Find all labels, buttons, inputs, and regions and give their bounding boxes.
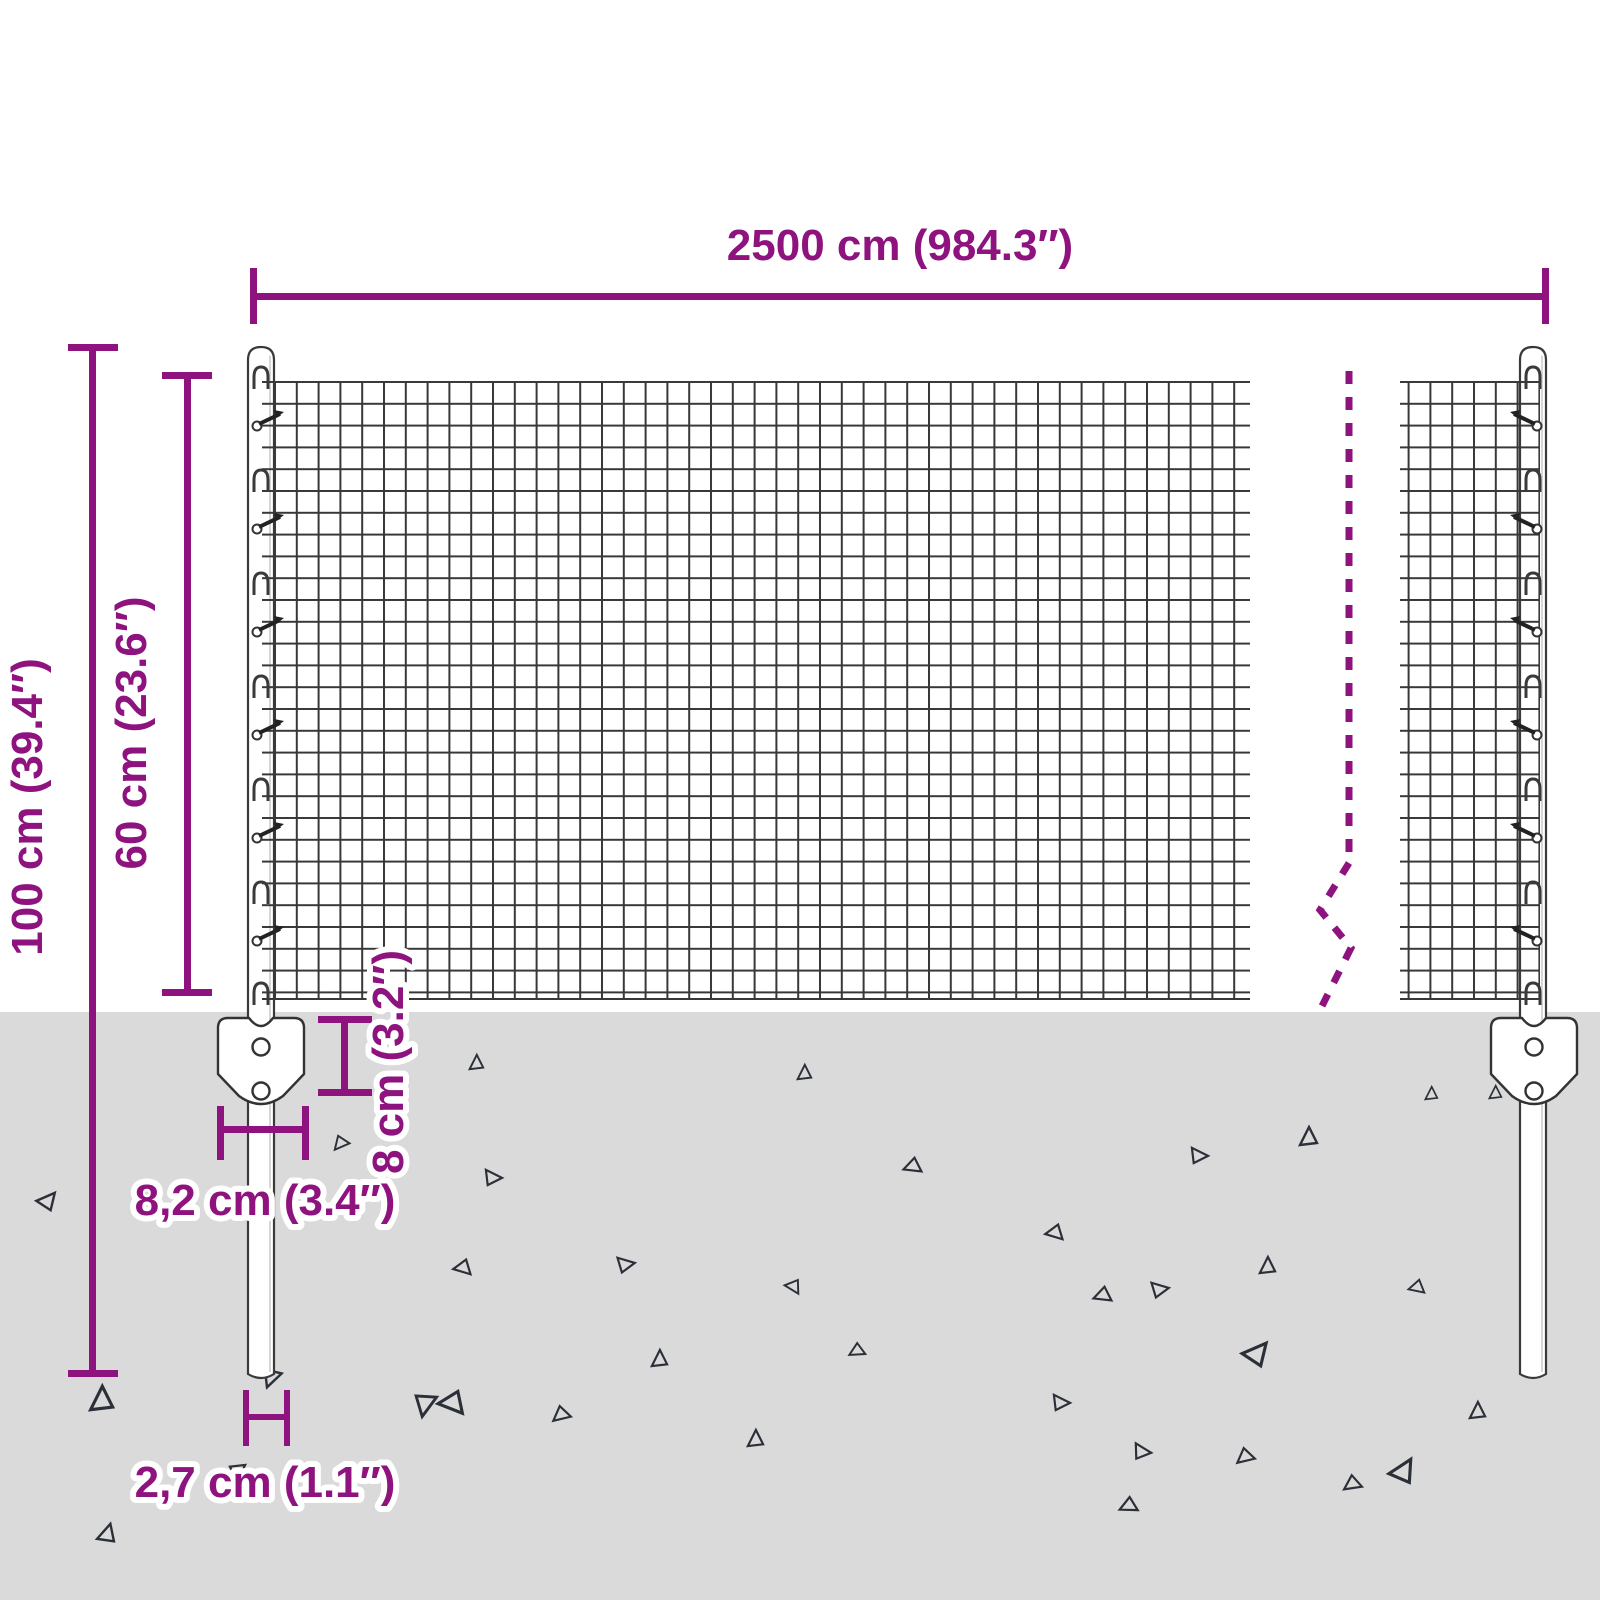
dimension-post-diameter-label: 2,7 cm (1.1″) <box>135 1458 396 1507</box>
dimension-total-width <box>250 268 1549 324</box>
dimension-bracket-width-label: 8,2 cm (3.4″) <box>135 1176 396 1225</box>
dimension-mesh-height <box>162 372 212 996</box>
mesh-panel-right <box>1400 381 1540 1000</box>
ground <box>0 1012 1600 1600</box>
mesh-panel-left <box>262 381 1250 1000</box>
break-line <box>1320 371 1351 1006</box>
dimension-bracket-height-label: 8 cm (3.2″) <box>364 950 413 1174</box>
dimension-mesh-height-label: 60 cm (23.6″) <box>107 596 156 869</box>
dimension-total-width-label: 2500 cm (984.3″) <box>727 221 1073 270</box>
dimension-post-height-label: 100 cm (39.4″) <box>3 658 52 955</box>
fence-dimension-diagram: 2500 cm (984.3″) 100 cm (39.4″) 60 cm (2… <box>0 0 1600 1600</box>
